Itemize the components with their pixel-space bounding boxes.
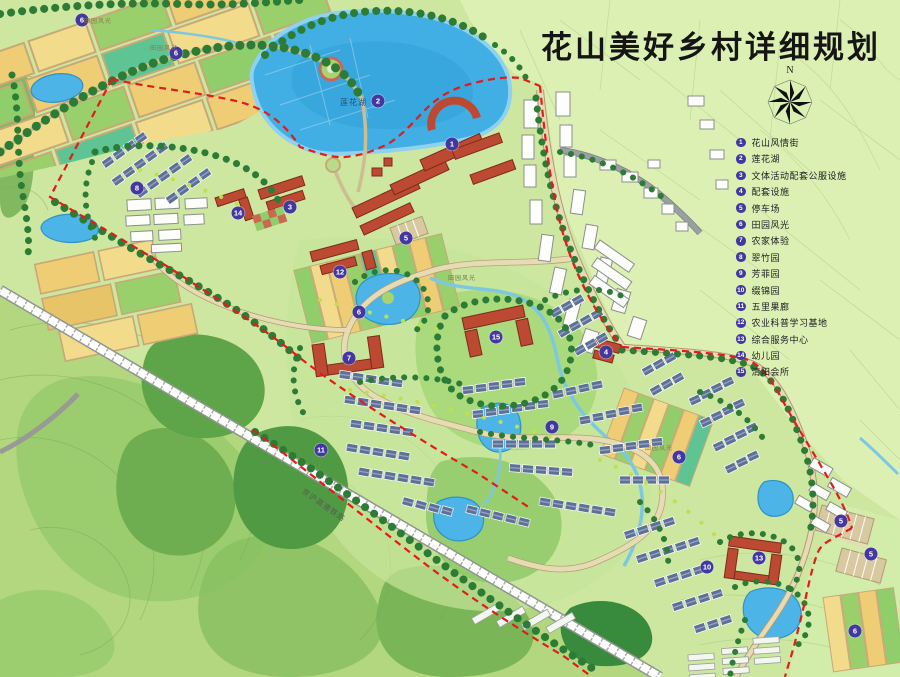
legend-item: 1花山风情街	[736, 136, 847, 149]
legend-number-badge: 11	[736, 302, 746, 312]
legend-item-label: 综合服务中心	[752, 333, 809, 346]
map-marker-8: 8	[131, 182, 144, 195]
legend-item: 2莲花湖	[736, 152, 847, 165]
map-marker-12: 12	[334, 266, 347, 279]
legend-item-label: 花山风情街	[752, 136, 800, 149]
map-marker-1: 1	[446, 138, 459, 151]
legend-item: 5停车场	[736, 202, 847, 215]
legend-item: 15清阳会所	[736, 365, 847, 378]
map-marker-5: 5	[835, 515, 848, 528]
legend-item: 7农家体验	[736, 234, 847, 247]
legend-number-badge: 3	[736, 171, 746, 181]
map-label: 田园风光	[645, 443, 673, 452]
legend-number-badge: 9	[736, 269, 746, 279]
map-marker-3: 3	[284, 201, 297, 214]
legend-item: 10缀锦园	[736, 284, 847, 297]
planning-map: 花山美好乡村详细规划 N 1花山风情街2莲花湖3文体活动配套公服设施4配套设施5…	[0, 0, 900, 677]
map-label: 莲花湖	[340, 97, 367, 108]
map-marker-6: 6	[673, 451, 686, 464]
legend-item-label: 配套设施	[752, 185, 790, 198]
legend-item-label: 五里果廊	[752, 300, 790, 313]
legend-number-badge: 1	[736, 138, 746, 148]
legend-item: 8翠竹园	[736, 251, 847, 264]
map-marker-2: 2	[372, 95, 385, 108]
legend-item: 14幼儿园	[736, 349, 847, 362]
legend-number-badge: 7	[736, 236, 746, 246]
legend-item: 13综合服务中心	[736, 333, 847, 346]
map-label: 田园风光	[84, 16, 112, 25]
map-marker-6: 6	[849, 625, 862, 638]
legend-number-badge: 5	[736, 203, 746, 213]
map-marker-6: 6	[353, 306, 366, 319]
map-marker-4: 4	[600, 346, 613, 359]
map-title: 花山美好乡村详细规划	[541, 22, 881, 67]
legend-number-badge: 15	[736, 367, 746, 377]
legend-item-label: 缀锦园	[752, 284, 781, 297]
legend-item-label: 清阳会所	[752, 365, 790, 378]
legend-item-label: 幼儿园	[752, 349, 781, 362]
legend-item-label: 农家体验	[752, 234, 790, 247]
legend-item-label: 农业科普学习基地	[752, 316, 828, 329]
map-label: 田园风光	[448, 273, 476, 282]
legend-number-badge: 12	[736, 318, 746, 328]
legend-number-badge: 6	[736, 220, 746, 230]
legend-number-badge: 14	[736, 351, 746, 361]
legend-item-label: 田园风光	[752, 218, 790, 231]
legend-item: 12农业科普学习基地	[736, 316, 847, 329]
compass-rose-icon	[760, 66, 820, 130]
legend-list: 1花山风情街2莲花湖3文体活动配套公服设施4配套设施5停车场6田园风光7农家体验…	[736, 136, 847, 382]
legend-item-label: 芳菲园	[752, 267, 781, 280]
legend-item-label: 停车场	[752, 202, 781, 215]
map-marker-5: 5	[865, 548, 878, 561]
north-arrow: N	[760, 66, 820, 144]
map-marker-14: 14	[232, 207, 245, 220]
map-marker-11: 11	[315, 444, 328, 457]
legend-number-badge: 13	[736, 334, 746, 344]
legend-number-badge: 4	[736, 187, 746, 197]
legend-item: 9芳菲园	[736, 267, 847, 280]
map-marker-15: 15	[490, 331, 503, 344]
legend-item-label: 文体活动配套公服设施	[752, 169, 847, 182]
legend-item-label: 莲花湖	[752, 152, 781, 165]
legend-item: 4配套设施	[736, 185, 847, 198]
map-label: 田园风光	[150, 43, 178, 52]
map-marker-13: 13	[753, 552, 766, 565]
legend-item: 11五里果廊	[736, 300, 847, 313]
legend-number-badge: 2	[736, 154, 746, 164]
map-marker-5: 5	[400, 232, 413, 245]
legend-number-badge: 10	[736, 285, 746, 295]
map-marker-10: 10	[701, 561, 714, 574]
legend-number-badge: 8	[736, 252, 746, 262]
map-marker-9: 9	[546, 421, 559, 434]
legend-item: 6田园风光	[736, 218, 847, 231]
map-marker-7: 7	[343, 352, 356, 365]
legend-item-label: 翠竹园	[752, 251, 781, 264]
legend-item: 3文体活动配套公服设施	[736, 169, 847, 182]
